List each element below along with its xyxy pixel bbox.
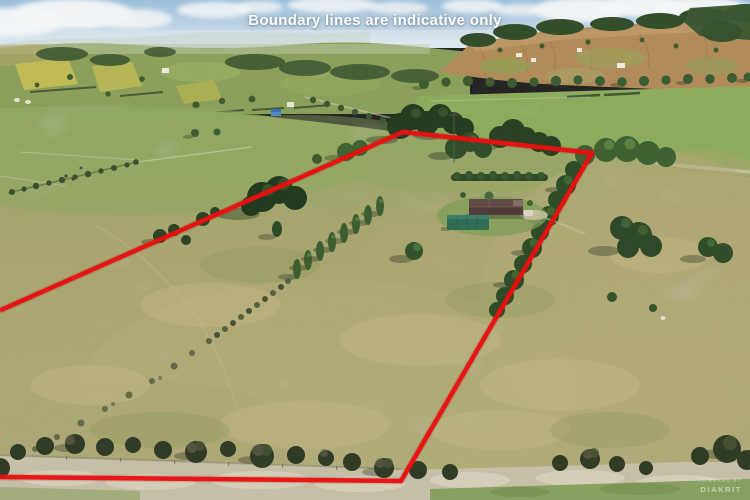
photo-grain xyxy=(0,0,750,500)
landscape-scene xyxy=(0,0,750,500)
aerial-photo: Boundary lines are indicative only POWER… xyxy=(0,0,750,500)
